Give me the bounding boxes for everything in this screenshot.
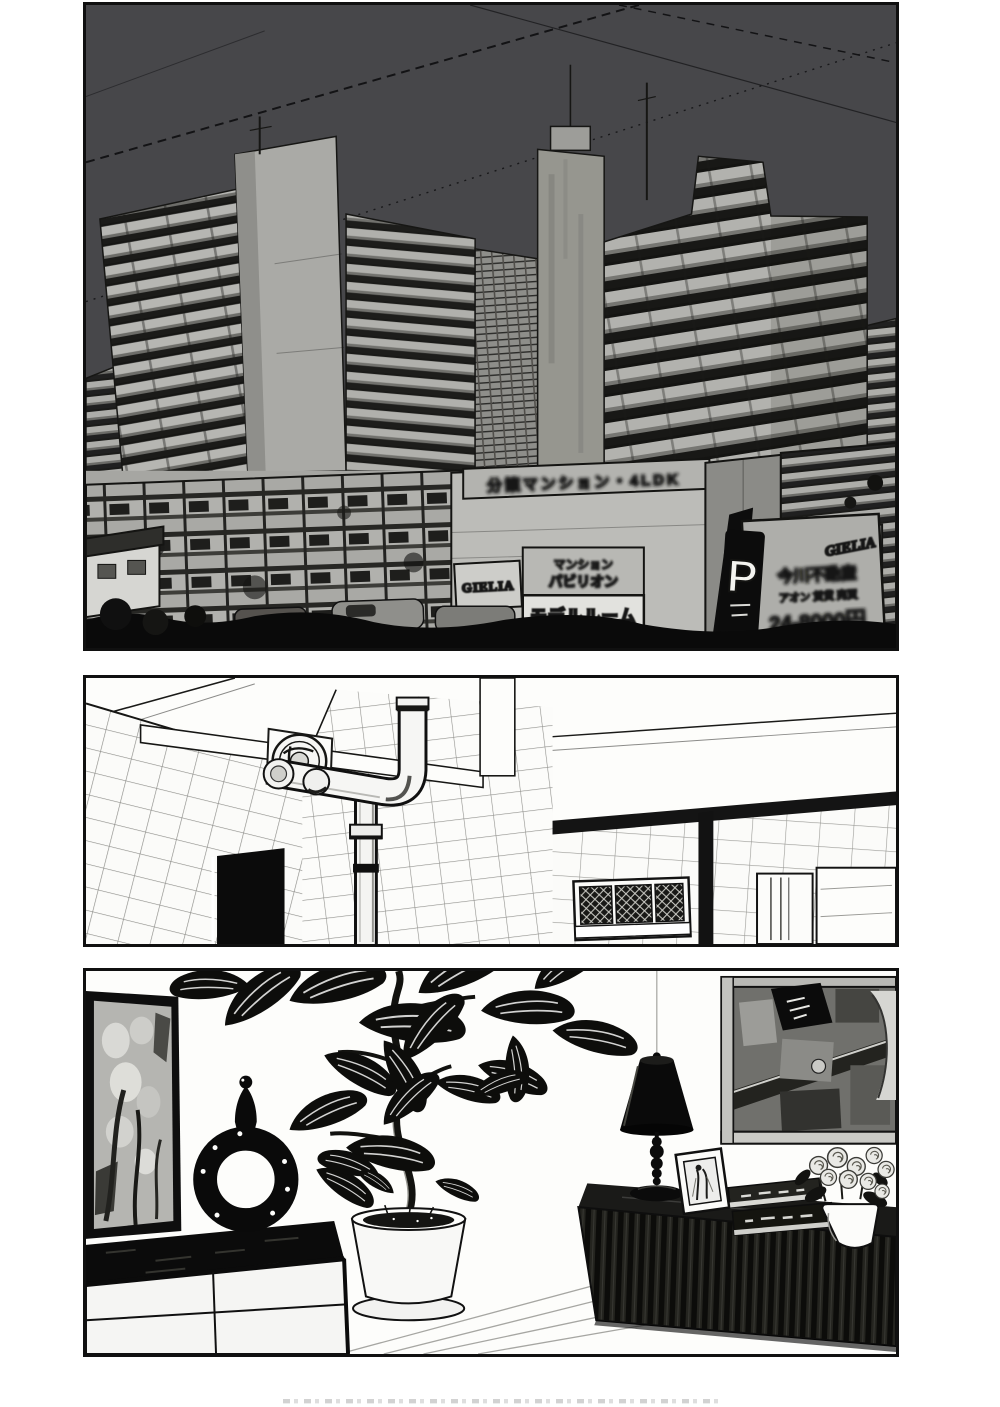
- photo-frame: [676, 1149, 730, 1214]
- parking-sign-letter: P: [725, 550, 759, 603]
- cubist-painting-right: [721, 977, 896, 1144]
- cropped-caption-text: [283, 1399, 719, 1407]
- dark-doorway: [217, 848, 285, 944]
- panel-tiled-corridor: [83, 675, 899, 947]
- white-door-panels: [757, 868, 896, 944]
- middle-tower: [346, 214, 475, 473]
- manga-page: { "page": { "background": "#ffffff", "in…: [0, 0, 1000, 1407]
- lattice-window: [573, 877, 690, 940]
- ceiling-pillar: [480, 678, 515, 776]
- elevator-shaft-tower: [235, 116, 346, 472]
- gielia-small-sign: GIELIA: [454, 561, 522, 610]
- painting-frame-bottom: [721, 1132, 896, 1144]
- board-upper-line2: パビリオン: [549, 573, 619, 589]
- left-tower: [100, 189, 248, 508]
- corner-shadow-strip: [698, 811, 713, 944]
- apartment-complex-scene: 分譲マンション・4LDK GIELIA マンション パビリオン モデルルーム: [86, 5, 896, 648]
- pipe-clamp: [353, 864, 379, 873]
- abstract-painting-left: [86, 991, 181, 1239]
- tiled-corridor-scene: [86, 678, 896, 944]
- lamp-base: [630, 1185, 684, 1201]
- painting-frame-left: [721, 977, 733, 1144]
- pipe-collar-band: [350, 835, 382, 839]
- plant-pot: [352, 1219, 465, 1303]
- living-room-scene: [86, 971, 896, 1354]
- panel-living-room: [83, 968, 899, 1357]
- panel-apartment-complex: 分譲マンション・4LDK GIELIA マンション パビリオン モデルルーム: [83, 2, 899, 651]
- books-stack: [728, 1178, 833, 1235]
- board-upper-line1: マンション: [554, 557, 613, 571]
- lattice-tower: [475, 249, 538, 473]
- pipe-top-band: [397, 705, 429, 711]
- gielia-small-sign-text: GIELIA: [461, 578, 514, 596]
